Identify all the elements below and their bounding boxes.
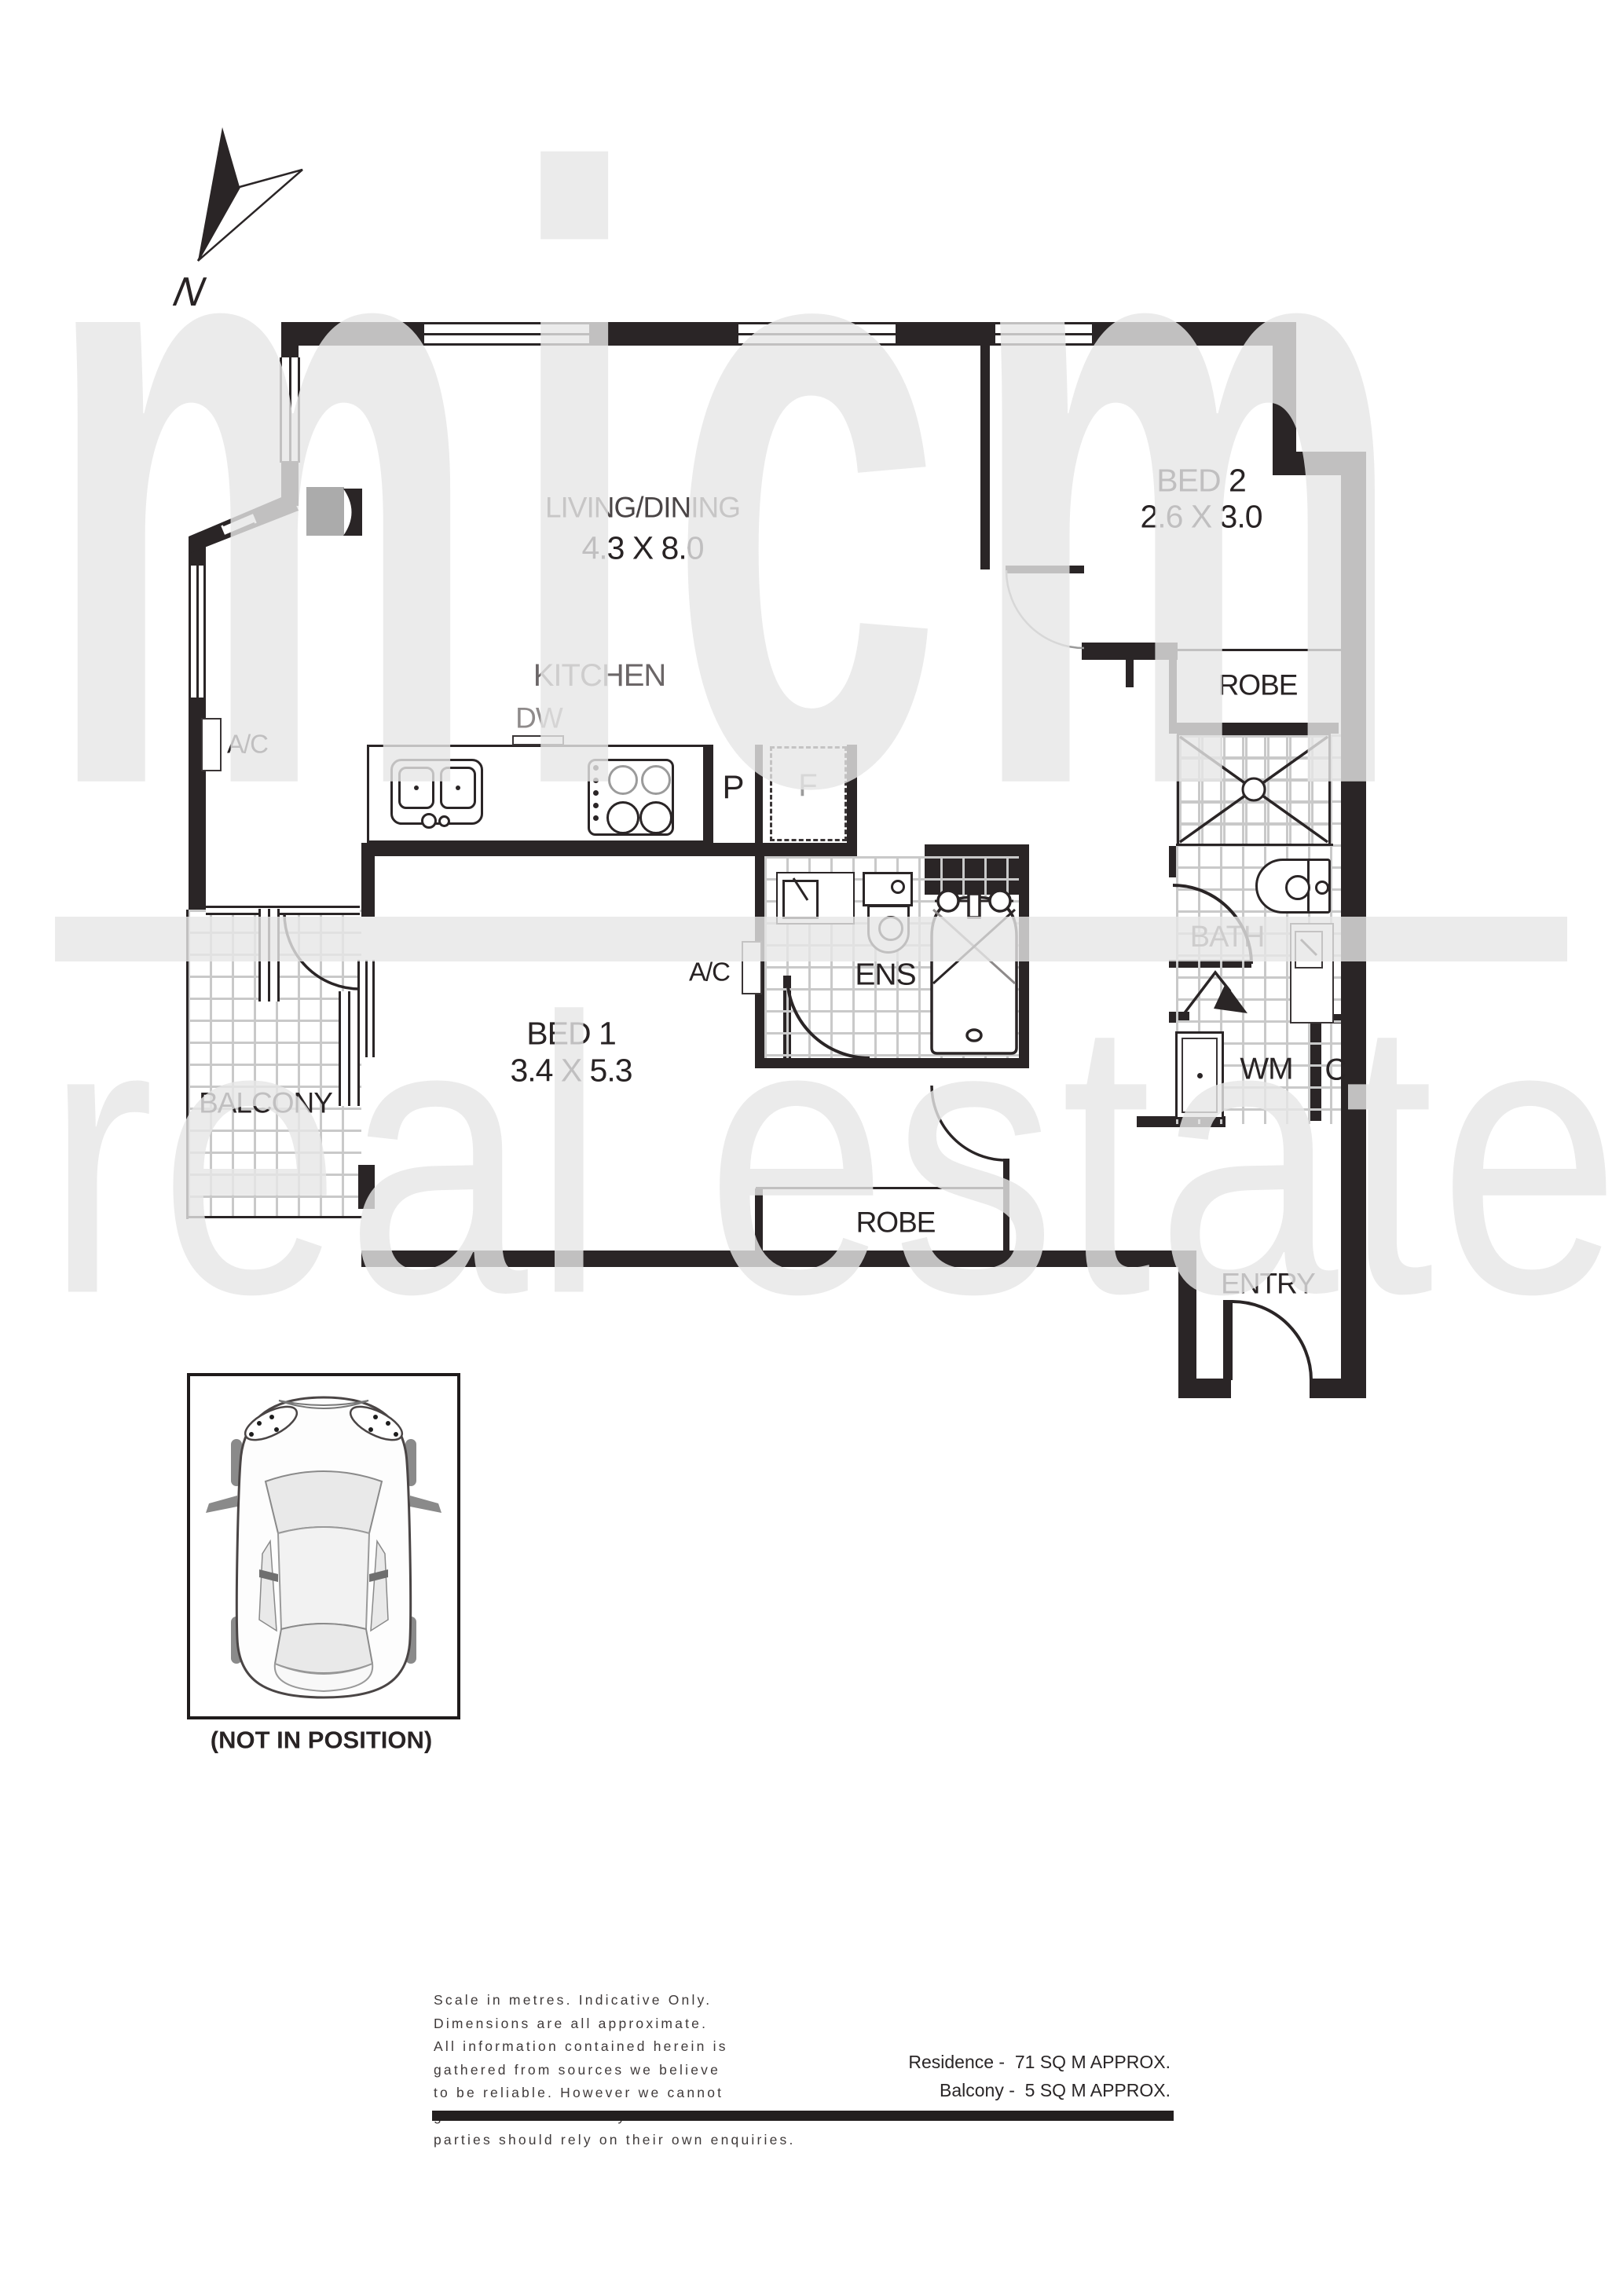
labels: N LIVING/DINING 4.3 X 8.0 BED 2 2.6 X 3.… <box>0 0 1623 2296</box>
room-dims-bed1: 3.4 X 5.3 <box>510 1055 632 1087</box>
room-label-bed2: BED 2 <box>1156 465 1246 497</box>
room-label-kitchen: KITCHEN <box>533 660 666 691</box>
label-robe-top: ROBE <box>1218 671 1298 700</box>
label-balcony: BALCONY <box>199 1089 332 1118</box>
room-dims-living: 4.3 X 8.0 <box>581 533 703 565</box>
compass-n-label: N <box>170 272 207 313</box>
label-cupboard: C <box>1324 1055 1346 1086</box>
label-entry: ENTRY <box>1221 1269 1315 1298</box>
label-wm: WM <box>1240 1054 1292 1085</box>
label-pantry: P <box>722 771 743 804</box>
room-dims-bed2: 2.6 X 3.0 <box>1140 501 1262 533</box>
label-ac-left: A/C <box>227 731 268 757</box>
room-label-ens: ENS <box>855 960 915 991</box>
carpark-caption: (NOT IN POSITION) <box>211 1728 432 1752</box>
room-label-bath: BATH <box>1190 922 1265 952</box>
room-label-living: LIVING/DINING <box>545 493 740 522</box>
label-robe-bottom: ROBE <box>856 1208 936 1237</box>
label-fridge: F <box>798 770 816 801</box>
label-dishwasher: DW <box>515 704 562 733</box>
room-label-bed1: BED 1 <box>526 1018 616 1050</box>
label-ac-ens: A/C <box>689 959 730 985</box>
floorplan-page: N LIVING/DINING 4.3 X 8.0 BED 2 2.6 X 3.… <box>0 0 1623 2296</box>
